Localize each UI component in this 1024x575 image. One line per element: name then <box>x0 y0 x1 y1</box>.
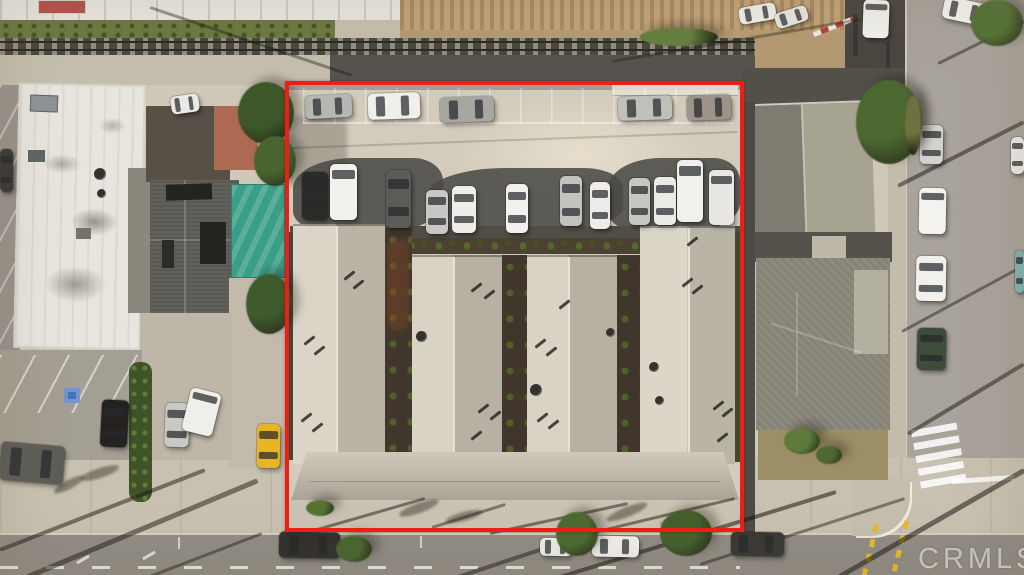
red-roof-structure <box>38 0 86 14</box>
car-window <box>545 540 551 554</box>
car-window <box>104 407 127 416</box>
rooftop-ac-unit <box>28 150 45 162</box>
car-window <box>103 429 125 437</box>
white-flat-roof-building <box>13 83 146 351</box>
roof-ridge <box>796 292 798 395</box>
car-window <box>188 96 194 110</box>
car-window <box>948 0 959 18</box>
handicap-stall-marking <box>64 388 80 403</box>
car-window <box>1 177 12 183</box>
hedge <box>129 362 152 502</box>
car <box>731 532 784 557</box>
rooftop-ac-unit <box>30 95 59 113</box>
tree <box>816 446 842 464</box>
roof-ridge <box>801 104 808 234</box>
teal-canopy-roof <box>231 184 285 278</box>
car-window <box>318 535 327 555</box>
car-window <box>175 98 182 112</box>
car <box>0 149 13 192</box>
porch-roof <box>854 270 888 354</box>
car <box>916 256 947 302</box>
car <box>919 188 947 234</box>
concrete-strip <box>335 20 400 38</box>
car-window <box>761 5 769 19</box>
curb-stall-tick <box>178 537 180 549</box>
car-window <box>1016 278 1023 284</box>
car-window <box>918 285 943 292</box>
car-window <box>622 539 629 555</box>
car-window <box>167 431 187 438</box>
car <box>1011 137 1024 174</box>
car-window <box>922 150 941 156</box>
car-window <box>922 192 944 200</box>
car <box>917 328 947 370</box>
street-centerline <box>0 566 740 569</box>
car-window <box>739 535 748 553</box>
dark-roof-house <box>150 180 239 313</box>
tree <box>971 0 1023 46</box>
car <box>920 125 944 164</box>
satellite-dish <box>94 168 106 180</box>
car <box>0 441 66 484</box>
car-window <box>1012 143 1023 149</box>
car <box>170 93 200 115</box>
car <box>100 399 129 447</box>
car <box>592 536 639 558</box>
property-boundary-outline <box>285 81 744 532</box>
car-window <box>1016 257 1023 264</box>
solar-panel <box>200 222 226 264</box>
car-window <box>919 263 944 271</box>
tree <box>784 428 820 454</box>
car <box>279 531 340 558</box>
rooftop-ac-unit <box>76 228 91 239</box>
car-window <box>40 449 52 479</box>
car-window <box>259 431 278 439</box>
satellite-dish <box>97 189 106 198</box>
car-window <box>920 335 944 343</box>
tree <box>640 28 718 46</box>
car-window <box>922 131 941 138</box>
car-window <box>9 447 22 477</box>
roof-ridge <box>771 323 861 354</box>
car-window <box>866 3 888 10</box>
grass-strip <box>0 20 335 40</box>
car-window <box>192 392 218 405</box>
car-window <box>919 355 943 362</box>
car-window <box>794 8 802 21</box>
car-window <box>599 538 607 554</box>
solar-panel <box>162 240 174 268</box>
curb-stall-tick <box>420 536 422 548</box>
solar-panel <box>166 183 213 201</box>
aerial-photo: CRMLS <box>0 0 1024 575</box>
walkway <box>812 236 846 260</box>
car-window <box>744 8 752 22</box>
car-window <box>1012 161 1023 167</box>
neighbor-house-roof <box>756 258 890 430</box>
car-window <box>779 13 788 26</box>
tree <box>336 536 372 562</box>
tree <box>905 95 921 155</box>
car-window <box>259 452 278 459</box>
gray-annex-roof <box>128 168 152 313</box>
car <box>862 0 889 38</box>
car-window <box>289 535 300 555</box>
crmls-watermark: CRMLS <box>918 543 1024 575</box>
car-window <box>1 156 12 163</box>
top-rooftops <box>0 0 400 22</box>
car-window <box>765 535 773 553</box>
car <box>1015 250 1024 293</box>
car <box>257 424 281 468</box>
